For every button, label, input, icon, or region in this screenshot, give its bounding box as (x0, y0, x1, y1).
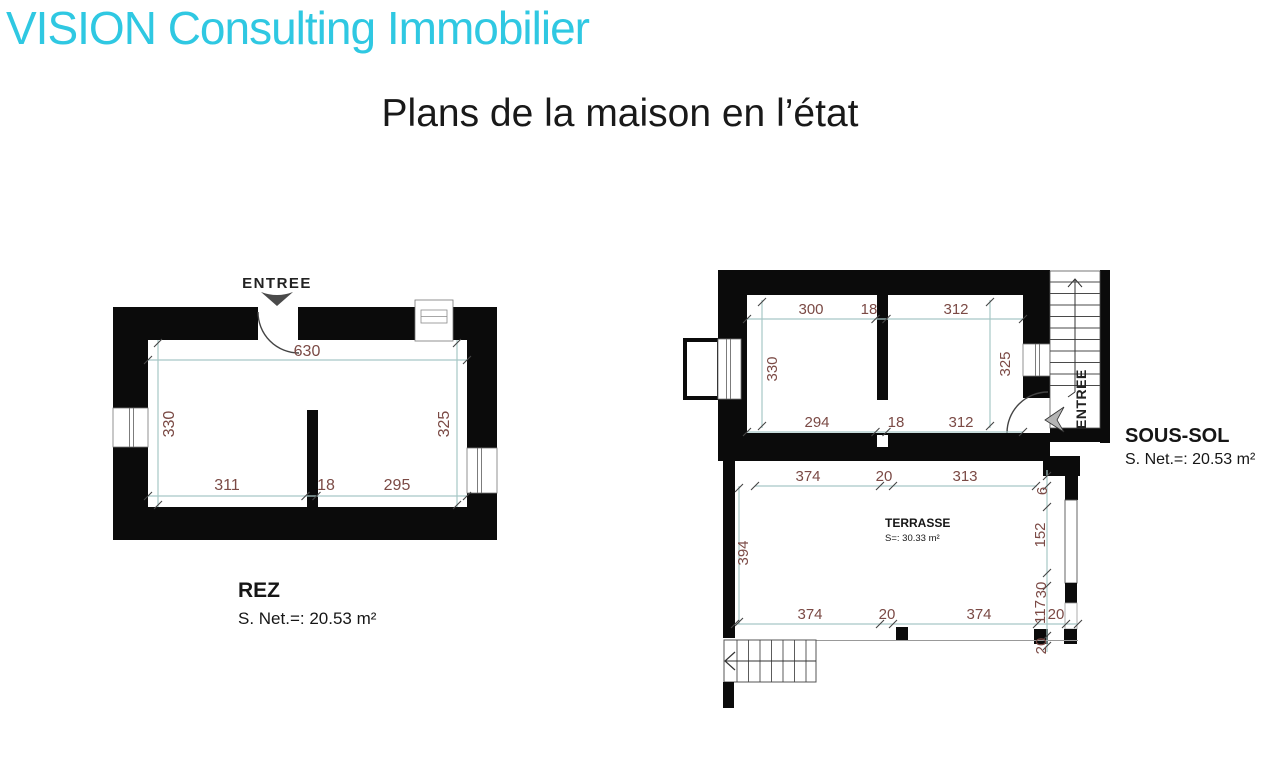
rez-dim-bottom-2: 18 (317, 477, 335, 494)
terrasse-dimensions: 374 20 313 374 20 374 20 394 6 152 30 11… (731, 468, 1082, 654)
ter-dim-right-4: 117 (1032, 600, 1049, 624)
soussol-wall-notch (877, 435, 888, 447)
soussol-terrasse: TERRASSE S=: 30.33 m² 374 20 313 374 20 … (723, 456, 1082, 708)
terrasse-staircase (724, 640, 816, 682)
rez-dim-bottom-1: 311 (214, 477, 240, 494)
ss-dim-bottom-2: 18 (888, 414, 905, 431)
ter-dim-right-5: 20 (1033, 638, 1050, 655)
ter-dim-top-3: 313 (952, 468, 977, 485)
soussol-door-opening (1023, 398, 1050, 433)
ter-dim-top-1: 374 (795, 468, 820, 485)
ter-dim-top-2: 20 (876, 468, 893, 485)
ter-dim-bottom-2: 20 (879, 606, 896, 623)
soussol-lightwell-box (685, 340, 719, 398)
terrasse-window-right (1065, 500, 1077, 583)
soussol-plan: ENTREE 300 18 312 294 18 312 330 325 (685, 270, 1256, 708)
ter-dim-bottom-3: 374 (966, 606, 991, 623)
floorplan-page: VISION Consulting Immobilier Plans de la… (0, 0, 1280, 778)
ter-dim-bottom-4: 20 (1048, 606, 1065, 623)
ter-dim-left: 394 (735, 540, 752, 565)
rez-plan-area: S. Net.=: 20.53 m² (238, 609, 377, 628)
soussol-interior-wall (877, 295, 888, 400)
ss-dim-bottom-3: 312 (948, 414, 973, 431)
ss-dim-top-3: 312 (943, 301, 968, 318)
rez-door-opening (258, 306, 298, 341)
ss-dim-top-2: 18 (861, 301, 878, 318)
rez-window-left (113, 408, 148, 447)
ter-dim-right-1: 6 (1034, 487, 1051, 495)
ss-dim-left: 330 (764, 356, 781, 381)
rez-entry-label: ENTREE (242, 275, 312, 292)
ss-dim-top-1: 300 (798, 301, 823, 318)
rez-dim-left: 330 (161, 411, 178, 438)
ter-dim-right-2: 152 (1032, 522, 1049, 547)
rez-dim-top: 630 (294, 343, 321, 360)
ter-dim-right-3: 30 (1033, 582, 1050, 599)
rez-window-top-right (415, 300, 453, 341)
rez-dim-right: 325 (436, 411, 453, 438)
rez-plan-name: REZ (238, 579, 280, 602)
soussol-plan-area: S. Net.=: 20.53 m² (1125, 451, 1256, 468)
ss-dim-bottom-1: 294 (804, 414, 829, 431)
soussol-entry-label: ENTREE (1073, 369, 1089, 429)
rez-plan: ENTREE 630 330 325 311 18 295 REZ S. Net… (113, 275, 497, 628)
soussol-plan-name: SOUS-SOL (1125, 425, 1229, 447)
terrasse-label: TERRASSE (885, 516, 950, 530)
rez-entry-arrow-icon (261, 292, 293, 306)
rez-window-right (467, 448, 497, 493)
floorplans-drawing: ENTREE 630 330 325 311 18 295 REZ S. Net… (0, 0, 1280, 778)
ter-dim-bottom-1: 374 (797, 606, 822, 623)
soussol-window-left (718, 339, 741, 399)
soussol-window-right (1023, 344, 1050, 376)
rez-dim-bottom-3: 295 (384, 477, 411, 494)
ss-dim-right: 325 (997, 351, 1014, 376)
terrasse-area: S=: 30.33 m² (885, 533, 940, 544)
